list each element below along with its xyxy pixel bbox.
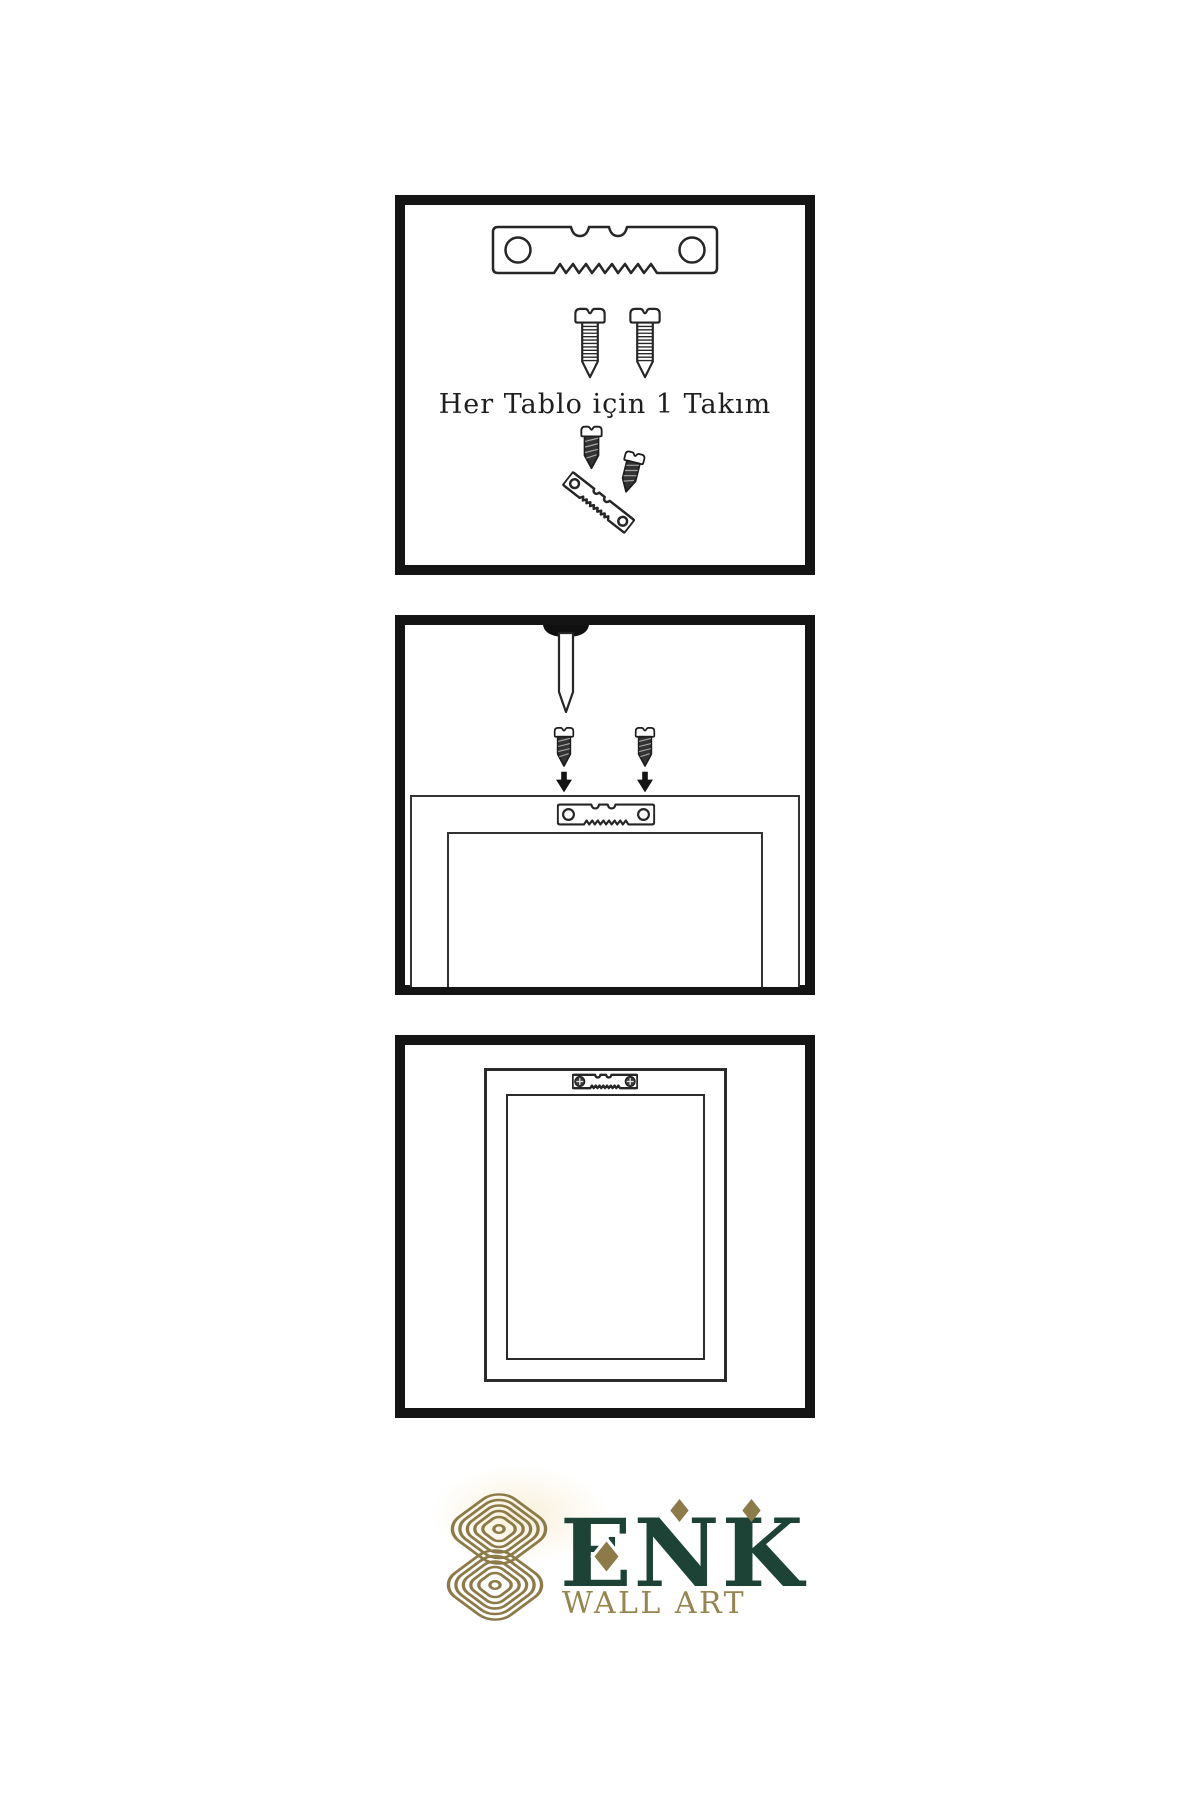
dark-screw-icon xyxy=(553,724,575,769)
sawtooth-hanger-on-frame-icon xyxy=(555,802,657,827)
brand-logo: ENK WALL ART xyxy=(0,1460,1200,1700)
panel-wall-mounting xyxy=(395,615,815,995)
dark-screw-icon xyxy=(614,447,648,497)
panel-frame-hung xyxy=(395,1035,815,1418)
panel-hardware-kit: Her Tablo için 1 Takım xyxy=(395,195,815,575)
sawtooth-hanger-icon xyxy=(491,221,719,279)
screw-head-icon xyxy=(625,1077,635,1087)
screw-icon xyxy=(627,304,663,382)
wall-nail-icon xyxy=(541,624,591,720)
frame-back-inner-edge xyxy=(447,832,763,987)
down-arrow-icon xyxy=(637,771,653,793)
screw-head-icon xyxy=(575,1077,585,1087)
brand-subtitle: WALL ART xyxy=(562,1587,746,1620)
hanging-frame-inner-edge xyxy=(506,1094,705,1360)
installed-hanger-with-screws-icon xyxy=(572,1072,638,1091)
screw-icon xyxy=(572,304,608,382)
down-arrow-icon xyxy=(556,771,572,793)
knot-logo-icon xyxy=(433,1485,563,1630)
dark-screw-icon xyxy=(634,724,656,769)
dark-screw-icon xyxy=(579,423,604,471)
instruction-sheet: Her Tablo için 1 Takım xyxy=(0,0,1200,1800)
screw-into-hanger-icon xyxy=(563,417,683,542)
